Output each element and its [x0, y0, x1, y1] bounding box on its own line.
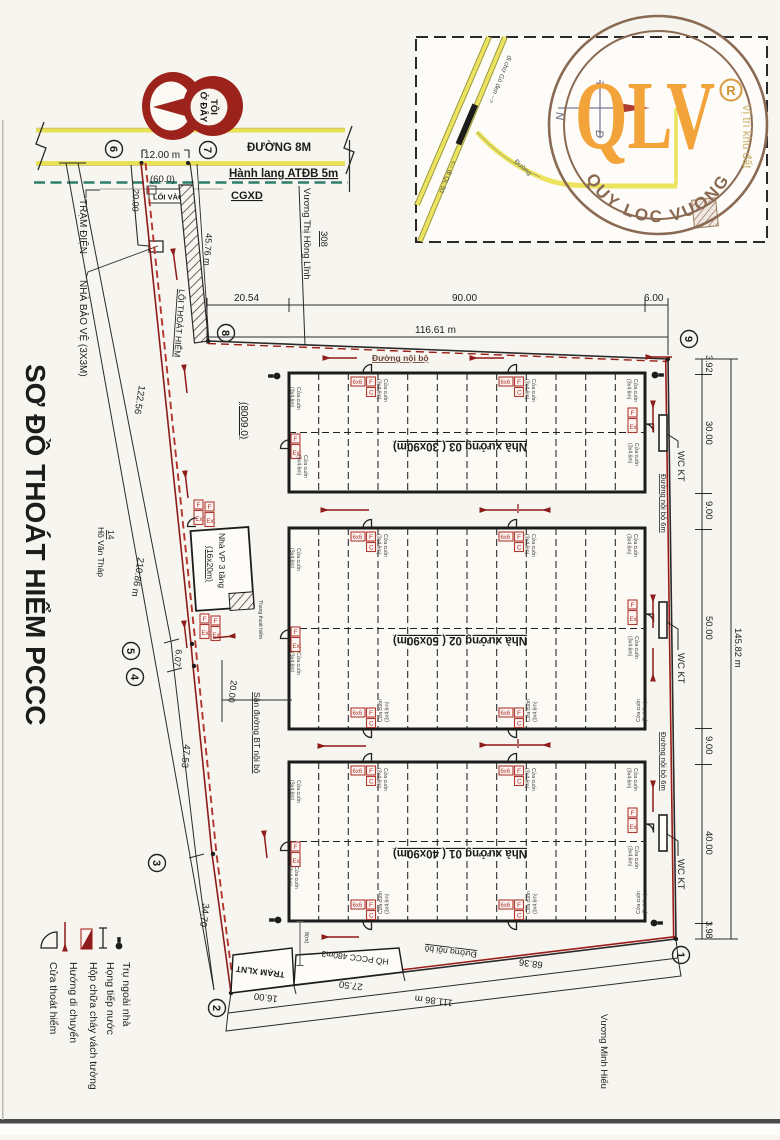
- svg-text:R: R: [726, 83, 736, 98]
- svg-text:116.61 m: 116.61 m: [415, 325, 456, 336]
- svg-text:40.00: 40.00: [703, 831, 714, 855]
- svg-text:14: 14: [106, 530, 116, 540]
- svg-text:3: 3: [150, 860, 162, 866]
- svg-text:(60.0): (60.0): [150, 174, 175, 185]
- svg-text:6: 6: [107, 146, 119, 152]
- svg-text:Nhà xưởng 03 ( 30x90m): Nhà xưởng 03 ( 30x90m): [393, 440, 527, 452]
- svg-text:SƠ ĐỒ THOÁT HIỂM PCCC: SƠ ĐỒ THOÁT HIỂM PCCC: [20, 364, 51, 725]
- svg-text:8: 8: [219, 330, 231, 336]
- svg-text:9.00: 9.00: [703, 736, 714, 755]
- svg-text:TRẠM ĐIỆN: TRẠM ĐIỆN: [77, 199, 90, 254]
- svg-text:Sân đường BT nội bộ: Sân đường BT nội bộ: [252, 692, 262, 774]
- svg-text:145.82 m: 145.82 m: [732, 628, 743, 668]
- svg-text:ĐƯỜNG 8M: ĐƯỜNG 8M: [247, 141, 311, 154]
- svg-text:Đường nội bộ 6m: Đường nội bộ 6m: [659, 474, 668, 533]
- svg-text:Vị trí khu đất: Vị trí khu đất: [740, 104, 752, 169]
- svg-text:6.07: 6.07: [172, 649, 184, 668]
- svg-text:Vương Minh Hiếu: Vương Minh Hiếu: [598, 1014, 609, 1089]
- svg-text:50.00: 50.00: [703, 616, 714, 640]
- svg-text:5: 5: [124, 648, 136, 654]
- svg-text:Hướng di chuyển: Hướng di chuyển: [67, 962, 79, 1043]
- svg-text:WC KT: WC KT: [675, 451, 686, 482]
- svg-text:Cửa thoát hiểm: Cửa thoát hiểm: [47, 962, 59, 1035]
- svg-text:Nhà xưởng 01 ( 40x90m): Nhà xưởng 01 ( 40x90m): [393, 847, 527, 859]
- svg-text:Hộp chữa cháy vách tường: Hộp chữa cháy vách tường: [87, 962, 99, 1090]
- svg-text:20.00: 20.00: [130, 189, 141, 212]
- svg-text:Thang thoát hiểm: Thang thoát hiểm: [257, 600, 264, 639]
- svg-text:9.00: 9.00: [703, 501, 714, 520]
- svg-text:Hành lang ATĐB 5m: Hành lang ATĐB 5m: [229, 168, 338, 180]
- svg-text:308: 308: [318, 231, 329, 247]
- svg-text:90.00: 90.00: [452, 293, 477, 304]
- svg-text:Hồ Văn Tháp: Hồ Văn Tháp: [96, 527, 106, 577]
- svg-text:9: 9: [682, 336, 694, 342]
- svg-text:3.92: 3.92: [704, 355, 714, 373]
- svg-text:N: N: [553, 112, 565, 120]
- svg-text:3.98: 3.98: [704, 921, 714, 939]
- svg-text:Đường nội bộ: Đường nội bộ: [372, 353, 429, 363]
- svg-text:Trụ ngoài nhà: Trụ ngoài nhà: [120, 962, 132, 1027]
- svg-text:4: 4: [128, 674, 140, 681]
- svg-text:12.00 m: 12.00 m: [144, 150, 180, 161]
- svg-text:WC KT: WC KT: [675, 653, 686, 684]
- svg-text:2: 2: [210, 1005, 222, 1011]
- svg-text:Họng tiếp nước: Họng tiếp nước: [104, 962, 116, 1035]
- svg-text:6.00: 6.00: [644, 293, 664, 304]
- svg-text:1: 1: [674, 952, 686, 958]
- svg-text:Vương Thị Hồng Lĩnh: Vương Thị Hồng Lĩnh: [301, 188, 312, 280]
- svg-text:(16x20m): (16x20m): [205, 546, 215, 582]
- svg-text:30.00: 30.00: [703, 421, 714, 445]
- svg-text:Đường nội bộ 6m: Đường nội bộ 6m: [659, 732, 668, 791]
- svg-text:QLV: QLV: [575, 62, 715, 170]
- svg-text:20.54: 20.54: [234, 293, 259, 304]
- svg-text:7: 7: [201, 147, 213, 153]
- svg-text:WC KT: WC KT: [675, 859, 686, 890]
- svg-text:Nhà VP 3 tầng: Nhà VP 3 tầng: [217, 533, 227, 588]
- svg-text:NHÀ BẢO VỆ (3X3M): NHÀ BẢO VỆ (3X3M): [77, 280, 90, 377]
- svg-text:(8009.0): (8009.0): [238, 402, 249, 439]
- svg-text:8(m): 8(m): [303, 932, 309, 943]
- svg-text:CGXD: CGXD: [231, 190, 263, 202]
- svg-text:Nhà xưởng 02 ( 50x90m): Nhà xưởng 02 ( 50x90m): [393, 634, 527, 646]
